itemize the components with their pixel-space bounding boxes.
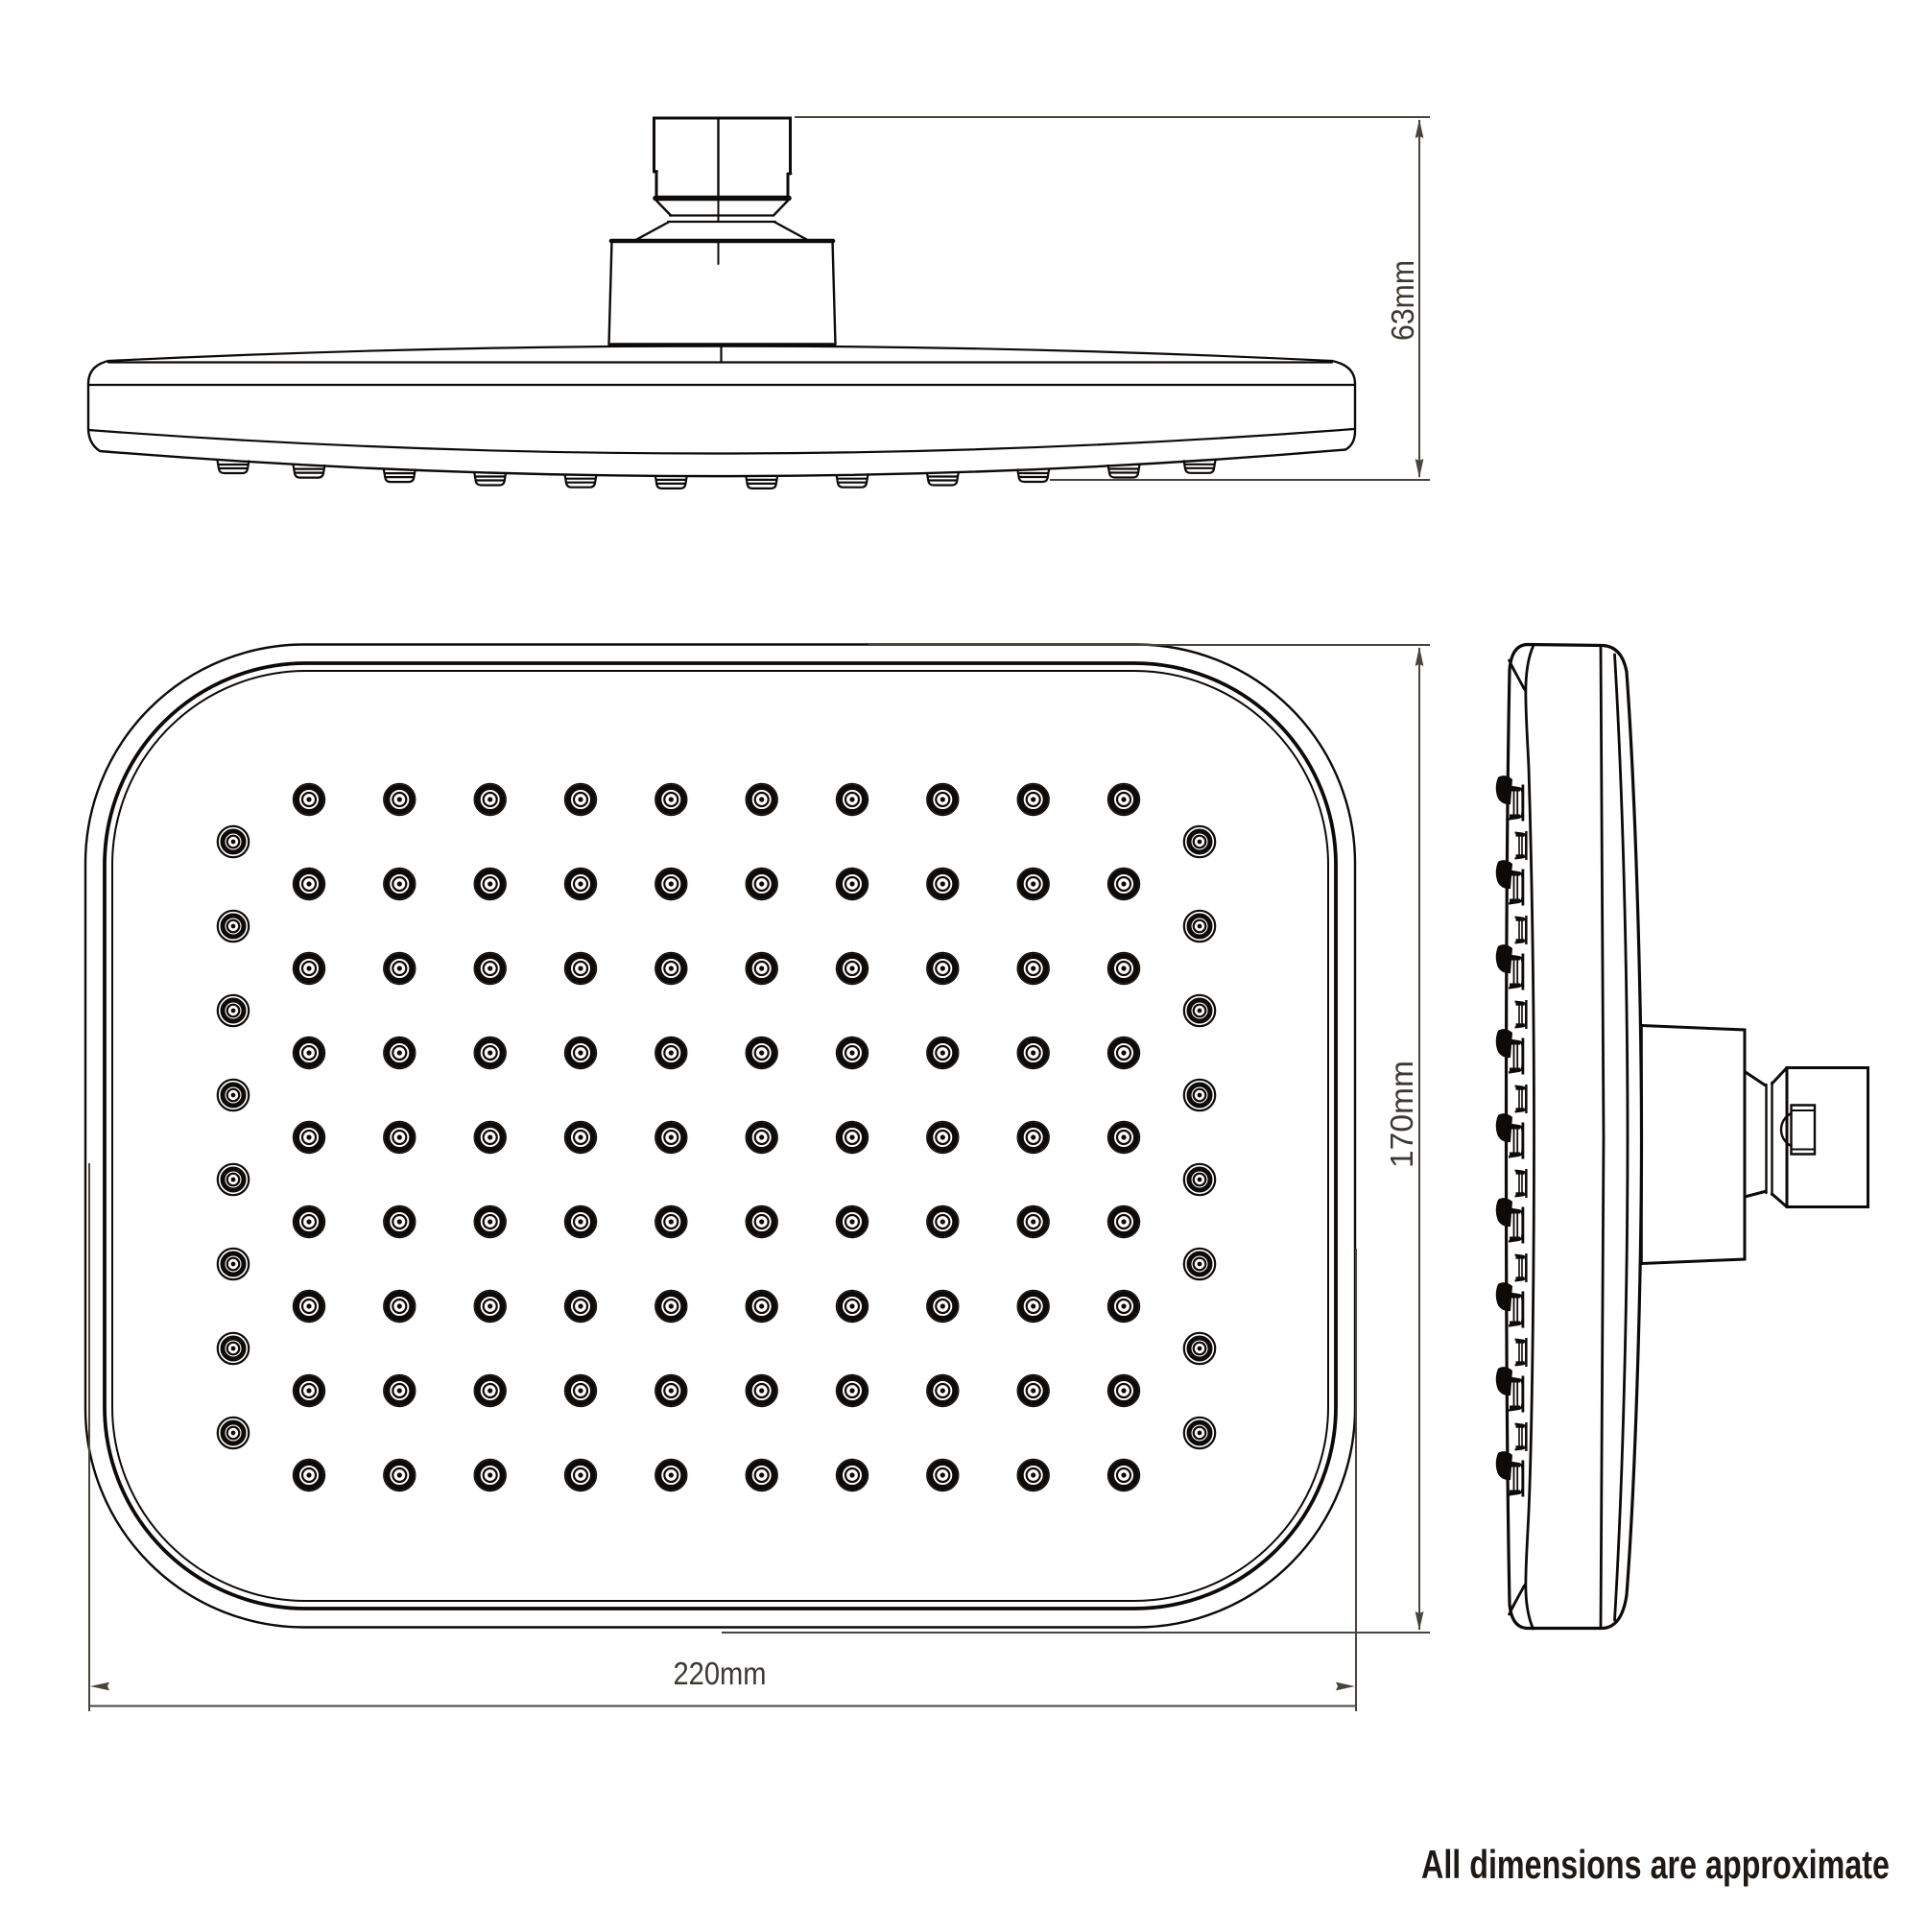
svg-text:All dimensions are approximate: All dimensions are approximate [1421,1842,1890,1887]
svg-text:220mm: 220mm [674,1656,767,1691]
svg-text:170mm: 170mm [1384,1061,1419,1168]
svg-text:63mm: 63mm [1385,260,1420,341]
